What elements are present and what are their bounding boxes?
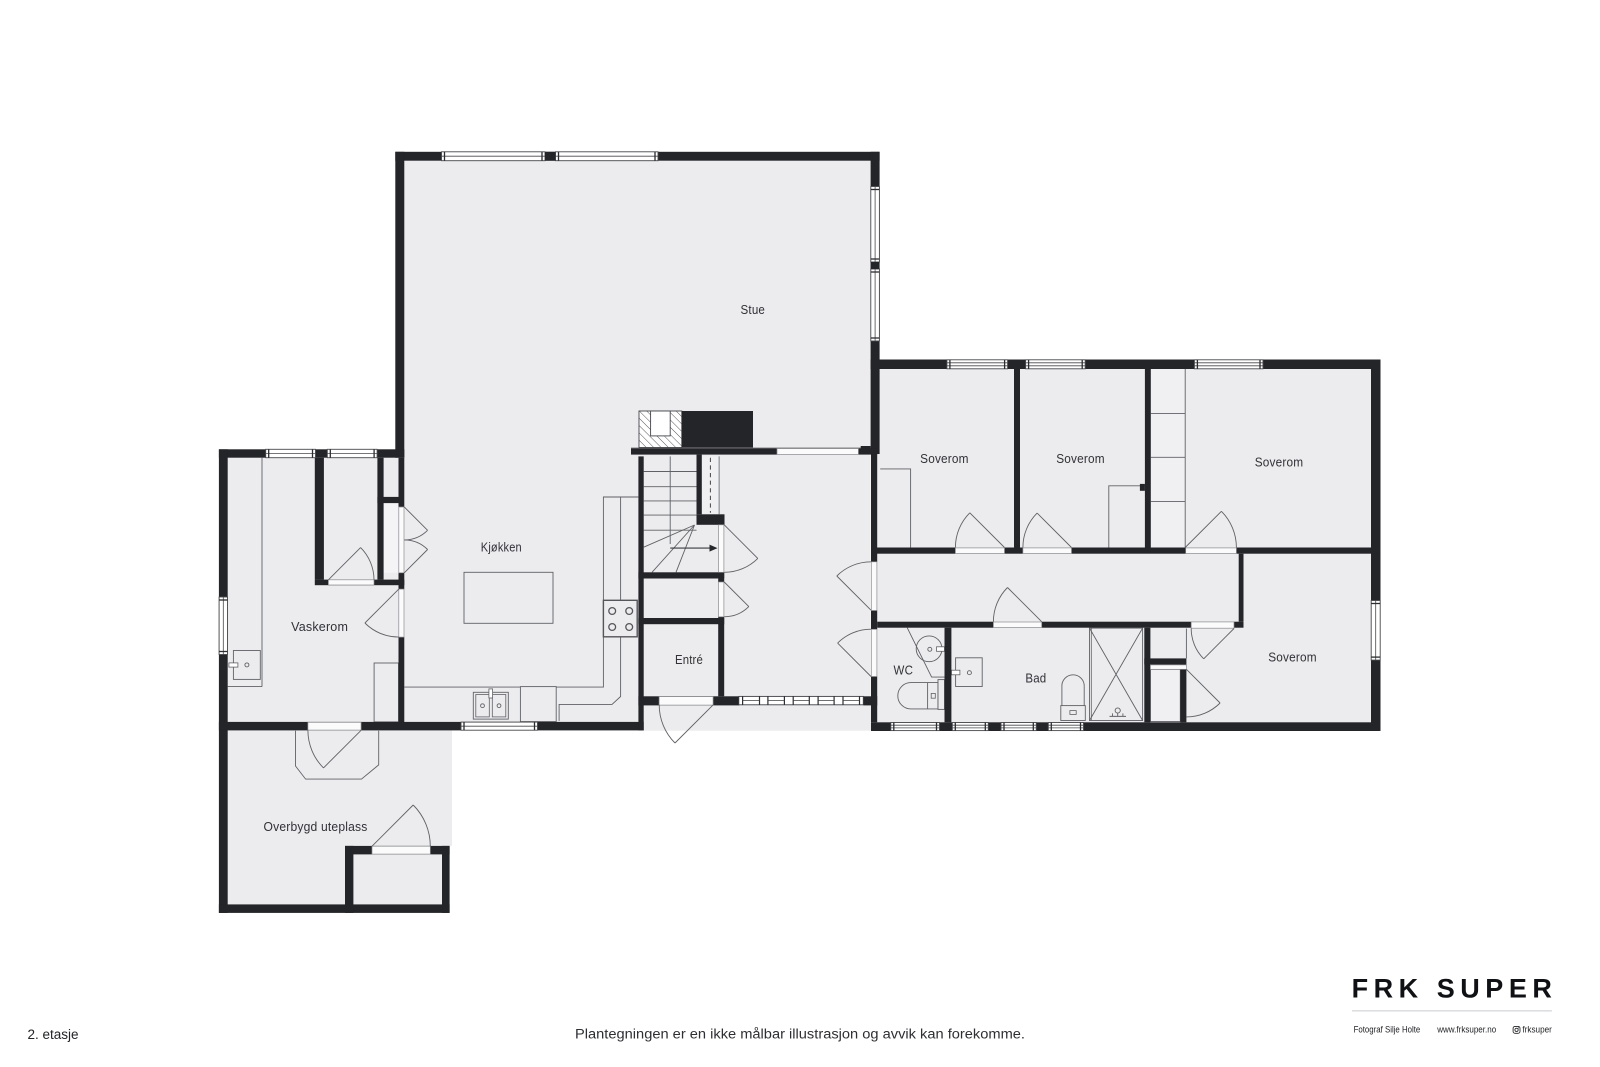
svg-text:Entré: Entré [675,652,703,667]
svg-text:Bad: Bad [1025,670,1046,685]
svg-text:Soverom: Soverom [920,451,969,466]
svg-text:Stue: Stue [741,302,766,317]
svg-text:Overbygd uteplass: Overbygd uteplass [264,819,368,834]
svg-text:www.frksuper.no: www.frksuper.no [1436,1025,1496,1035]
svg-text:Vaskerom: Vaskerom [291,619,348,634]
svg-text:Fotograf Silje Holte: Fotograf Silje Holte [1354,1025,1421,1035]
svg-text:Soverom: Soverom [1056,451,1105,466]
svg-text:frksuper: frksuper [1522,1025,1552,1035]
svg-text:2. etasje: 2. etasje [28,1027,79,1042]
svg-text:Plantegningen er en ikke målba: Plantegningen er en ikke målbar illustra… [575,1027,1025,1042]
svg-text:WC: WC [894,663,914,678]
svg-text:FRK SUPER: FRK SUPER [1352,974,1552,1004]
svg-text:Soverom: Soverom [1255,455,1304,470]
svg-text:Kjøkken: Kjøkken [481,540,522,555]
svg-text:Soverom: Soverom [1268,649,1317,664]
